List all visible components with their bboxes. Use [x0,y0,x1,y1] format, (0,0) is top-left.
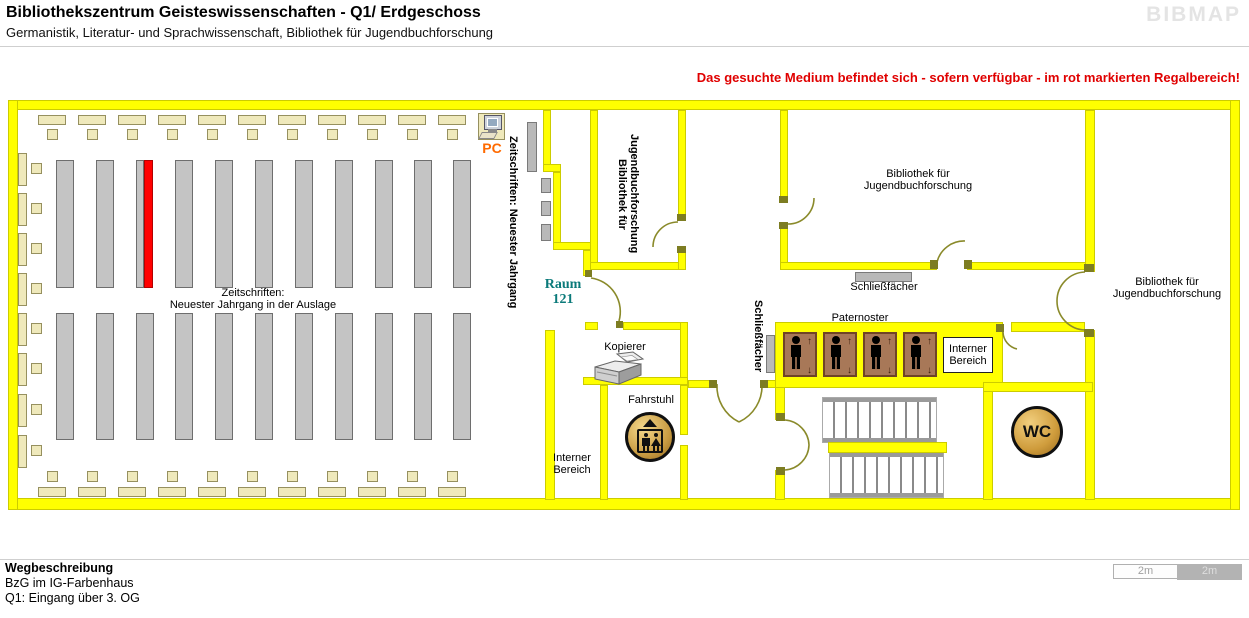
chair [247,129,258,140]
bookshelf [375,313,393,440]
highlighted-bookshelf [144,160,153,288]
wall-segment [553,172,561,250]
bookshelf [215,160,233,288]
bookshelf [414,160,432,288]
locker-shelf [541,178,551,193]
paternoster-cabin: ↑↓ [783,332,817,377]
label-room-jugendbuchforschung-small: Bibliothek für Jugendbuchforschung [616,118,640,270]
bookshelf [175,313,193,440]
label-paternoster: Paternoster [800,312,920,324]
chair [31,243,42,254]
label-fahrstuhl: Fahrstuhl [606,394,696,406]
wall-segment [780,262,937,270]
table [18,233,27,266]
chair [367,129,378,140]
locker-shelf [541,201,551,216]
chair [207,471,218,482]
locker-shelf [527,122,537,172]
chair [31,363,42,374]
scale-bar: 2m 2m [1113,564,1240,578]
keyboard-icon [478,132,498,139]
label-raum-121: Raum 121 [531,277,595,307]
chair [447,129,458,140]
chair [327,471,338,482]
table [438,115,466,125]
bookshelf [295,160,313,288]
label-interner-bereich: Interner Bereich [538,452,606,476]
header-divider [0,46,1249,47]
wegbeschreibung-line: Q1: Eingang über 3. OG [5,591,140,606]
table [358,115,386,125]
bookshelf [56,313,74,440]
door-arc [788,198,814,224]
chair [247,471,258,482]
door-arc [937,241,965,262]
table [198,487,226,497]
paternoster-cabin: ↑↓ [903,332,937,377]
table [358,487,386,497]
chair [167,471,178,482]
bookshelf [414,313,432,440]
locker-shelf [766,335,775,373]
chair [127,129,138,140]
chair [407,129,418,140]
pc-workstation [478,113,505,140]
door-hinge [616,321,623,328]
floor-plan: PC Zeitschriften: Neuester Jahrgang Bibl… [8,100,1240,510]
wall-segment [585,322,598,330]
wegbeschreibung-heading: Wegbeschreibung [5,561,140,576]
table [118,487,146,497]
table [398,115,426,125]
wall-segment [678,248,686,270]
chair [127,471,138,482]
door-arc [717,384,739,422]
computer-icon [484,115,502,130]
wall-segment [590,110,598,270]
wall-segment [780,110,788,198]
wall-segment [680,322,688,385]
elevator-icon [625,412,675,462]
table [38,487,66,497]
wall-segment [8,498,1240,510]
table [18,394,27,427]
wall-segment [1085,330,1095,500]
locker-shelf [541,224,551,241]
table [238,115,266,125]
stairs-flight [823,398,936,442]
bookshelf [453,313,471,440]
chair [407,471,418,482]
door-arc [785,445,809,470]
bookshelf [453,160,471,288]
footer-divider [0,559,1249,560]
table [18,435,27,468]
wall-segment [967,262,1090,270]
table [158,115,186,125]
wall-segment [543,164,561,172]
wall-segment [688,380,717,388]
copier-icon [591,350,647,393]
table [18,273,27,306]
chair [47,129,58,140]
table [78,115,106,125]
scale-segment-light: 2m [1113,564,1178,579]
chair [31,323,42,334]
label-zeitschriften-auslage: Zeitschriften: Neuester Jahrgang in der … [133,287,373,311]
wall-segment [1230,100,1240,510]
page-subtitle: Germanistik, Literatur- und Sprachwissen… [6,25,493,40]
door-arc [785,420,809,445]
chair [167,129,178,140]
bookshelf [335,313,353,440]
wall-segment [1011,322,1085,332]
svg-text:↓: ↓ [887,365,892,375]
bibmap-page: Bibliothekszentrum Geisteswissenschaften… [0,0,1249,618]
chair [287,471,298,482]
table [318,487,346,497]
wall-segment [983,382,993,500]
table [18,313,27,346]
door-arc [591,278,620,321]
paternoster-cabin: ↑↓ [823,332,857,377]
bookshelf [255,160,273,288]
wegbeschreibung-block: Wegbeschreibung BzG im IG-Farbenhaus Q1:… [5,561,140,606]
chair [47,471,58,482]
bookshelf [96,160,114,288]
bookshelf [295,313,313,440]
label-schliessfaecher-vertical: Schließfächer [752,300,764,384]
svg-text:↑: ↑ [887,336,892,347]
chair [87,471,98,482]
table [278,115,306,125]
bookshelf [96,313,114,440]
bookshelf [136,160,144,288]
table [38,115,66,125]
pc-label: PC [476,140,508,156]
svg-text:↓: ↓ [927,365,932,375]
table [398,487,426,497]
chair [287,129,298,140]
chair [31,203,42,214]
wegbeschreibung-line: BzG im IG-Farbenhaus [5,576,140,591]
chair [447,471,458,482]
table [18,153,27,186]
bookshelf [335,160,353,288]
svg-text:↑: ↑ [807,336,812,347]
wall-segment [543,110,551,172]
wall-segment [8,100,18,510]
door-arc [1057,272,1085,301]
page-title: Bibliothekszentrum Geisteswissenschaften… [6,4,481,22]
wc-icon: WC [1011,406,1063,458]
wall-segment [678,110,686,220]
up-arrow-icon [643,419,657,427]
label-schliessfaecher: Schließfächer [824,281,944,293]
chair [327,129,338,140]
table [78,487,106,497]
bibmap-logo: BIBMAP [1146,3,1241,27]
bookshelf [136,313,154,440]
wall-segment [8,100,1240,110]
label-zeitschriften-wall: Zeitschriften: Neuester Jahrgang [507,136,519,326]
table [278,487,306,497]
table [318,115,346,125]
paternoster-cabin: ↑↓ [863,332,897,377]
wall-segment [775,470,785,500]
door-arc [1003,332,1017,349]
door-arc [653,222,678,247]
svg-text:↑: ↑ [927,336,932,347]
svg-text:↑: ↑ [847,336,852,347]
table [158,487,186,497]
table [18,353,27,386]
label-room-jugendbuchforschung-large: Bibliothek für Jugendbuchforschung [788,168,1048,192]
svg-text:↓: ↓ [807,365,812,375]
highlight-notice: Das gesuchte Medium befindet sich - sofe… [697,70,1240,85]
chair [207,129,218,140]
wall-segment [680,445,688,500]
bookshelf [255,313,273,440]
table [438,487,466,497]
chair [367,471,378,482]
chair [31,163,42,174]
stairs-landing [828,442,947,453]
label-room-jugendbuchforschung-right: Bibliothek für Jugendbuchforschung [1098,276,1236,300]
chair [31,283,42,294]
bookshelf [56,160,74,288]
chair [31,404,42,415]
wall-segment [680,385,688,435]
wall-segment [553,242,591,250]
chair [31,445,42,456]
bookshelf [175,160,193,288]
wall-segment [983,382,1093,392]
table [238,487,266,497]
table [198,115,226,125]
bookshelf [215,313,233,440]
stairs-flight [830,453,943,497]
interner-bereich-box: Interner Bereich [943,337,993,373]
door-arc [739,384,762,422]
table [18,193,27,226]
wall-segment [1085,110,1095,272]
bookshelf [375,160,393,288]
table [118,115,146,125]
scale-segment-dark: 2m [1177,564,1242,580]
chair [87,129,98,140]
svg-text:↓: ↓ [847,365,852,375]
wall-segment [623,322,688,330]
